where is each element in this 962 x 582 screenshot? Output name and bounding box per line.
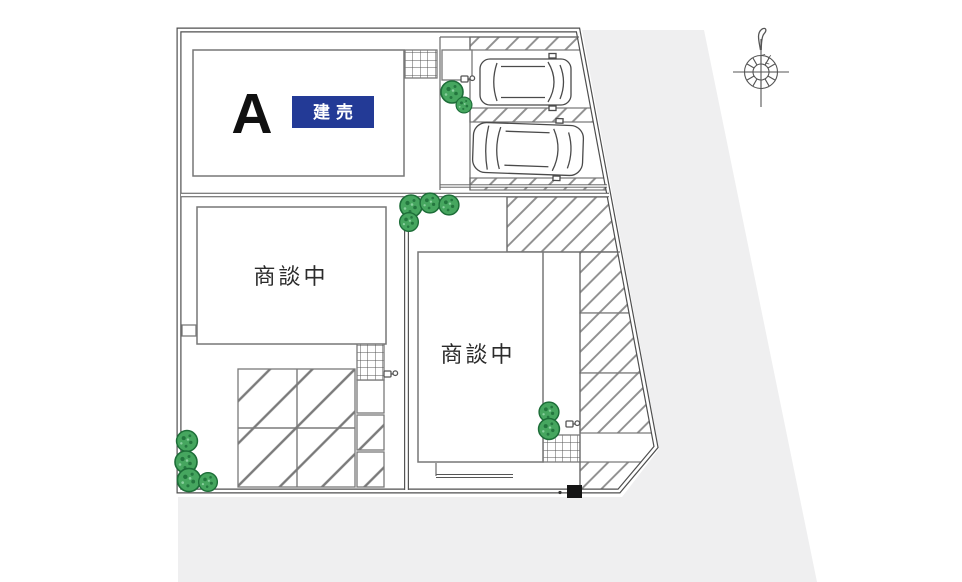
tree-icon — [400, 213, 419, 232]
survey-point — [558, 491, 561, 494]
tree-icon — [539, 419, 560, 440]
lot-c-status: 商談中 — [440, 342, 515, 367]
compass-icon — [733, 28, 789, 107]
car-2-icon — [472, 116, 584, 182]
tree-icon — [177, 431, 198, 452]
tap-icon — [384, 371, 398, 377]
tap-icon — [461, 76, 475, 82]
lot-a-label: A — [231, 82, 272, 146]
entrance-marker — [567, 485, 582, 498]
north-needle-icon — [759, 28, 766, 50]
car-1-icon — [480, 54, 571, 111]
tree-icon — [439, 195, 459, 215]
site-plan-canvas: A 建売 商談中 商談中 — [0, 0, 962, 582]
lot-b-status: 商談中 — [253, 264, 328, 289]
lot-b-region[interactable]: 商談中 — [197, 207, 386, 344]
lot-a-badge-label: 建売 — [313, 102, 359, 122]
lot-a-region[interactable]: A 建売 — [193, 50, 404, 176]
tree-icon — [420, 193, 440, 213]
tree-icon — [199, 473, 218, 492]
site-plan-drawing: A 建売 商談中 商談中 — [0, 0, 962, 582]
lot-c-region[interactable]: 商談中 — [418, 252, 543, 462]
tree-icon — [177, 468, 200, 491]
tap-icon — [566, 421, 580, 427]
meter-box — [182, 325, 196, 336]
tree-icon — [456, 97, 472, 113]
